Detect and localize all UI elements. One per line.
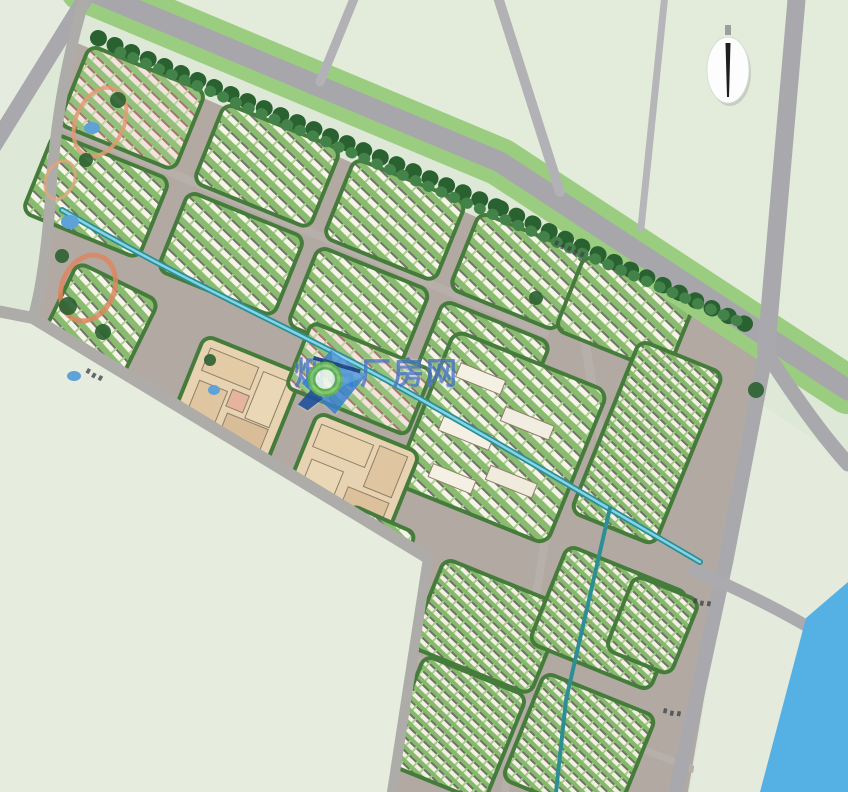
tree-blob-4 bbox=[79, 153, 93, 167]
tree-blob-2 bbox=[55, 249, 69, 263]
compass-stem bbox=[725, 25, 731, 35]
tree-blob-0 bbox=[59, 297, 77, 315]
tree-blob-1 bbox=[95, 324, 111, 340]
pond-1 bbox=[61, 215, 79, 229]
pond-0 bbox=[84, 122, 100, 134]
pond-2 bbox=[67, 371, 81, 381]
tree-blob-3 bbox=[110, 92, 126, 108]
tree-blob-5 bbox=[204, 354, 216, 366]
map-canvas[interactable] bbox=[0, 0, 848, 792]
tree-blob-6 bbox=[529, 291, 543, 305]
map-layers bbox=[0, 0, 848, 792]
tree-blob-7 bbox=[748, 382, 764, 398]
pond-3 bbox=[208, 385, 220, 395]
site-plan-map[interactable]: 烟台厂房网 bbox=[0, 0, 848, 792]
